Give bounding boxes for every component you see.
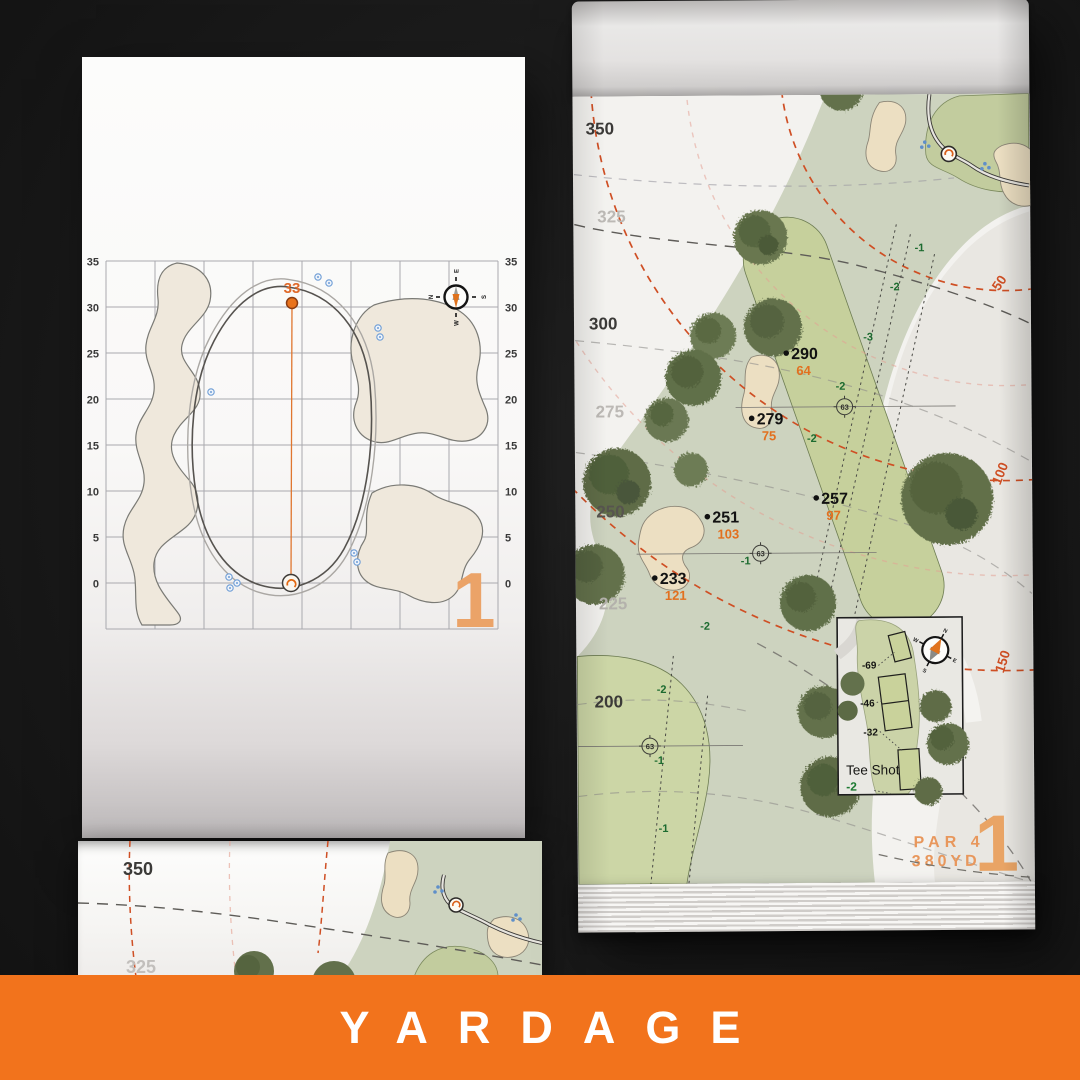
- tee-yardage-label: -32: [863, 727, 878, 738]
- tee-shot-title: Tee Shot: [846, 762, 900, 777]
- hole-number: 1: [452, 556, 495, 644]
- elevation-label: -3: [863, 332, 873, 344]
- axis-tick-label: 25: [87, 349, 99, 361]
- hole-map-page: 63 63 63 350 325 300 275 250 225 200: [572, 0, 1035, 933]
- sprinkler-distance: 63: [840, 403, 848, 412]
- hole-map-svg: 63 63 63 350 325 300 275 250 225 200: [572, 93, 1034, 884]
- elevation-label: -2: [700, 621, 710, 633]
- point-distance: 233: [660, 571, 687, 588]
- hole-number: 1: [974, 799, 1019, 885]
- axis-tick-label: 5: [93, 533, 99, 545]
- axis-tick-label: 35: [87, 257, 99, 269]
- tee-yardage-label: -46: [860, 699, 875, 710]
- scale-label: 250: [596, 502, 625, 521]
- compass-e: E: [455, 269, 461, 273]
- scale-label: 300: [589, 314, 618, 333]
- scale-label: 325: [126, 957, 156, 977]
- compass-n: N: [429, 295, 435, 299]
- elevation-label: -2: [657, 684, 667, 696]
- axis-ticks-right: 35 30 25 20 15 10 5 0: [505, 257, 517, 591]
- hole-map: 63 63 63 350 325 300 275 250 225 200: [572, 93, 1034, 884]
- axis-tick-label: 35: [505, 257, 517, 269]
- flipped-page-back: [572, 0, 1030, 97]
- green-depth-measure: 33: [283, 280, 301, 592]
- bunker: [123, 263, 488, 625]
- point-to-front: 75: [762, 428, 777, 443]
- next-page-preview: 350 325: [78, 841, 542, 977]
- compass-w: W: [455, 320, 461, 326]
- green-outline: [188, 279, 376, 596]
- elevation-label: -1: [654, 755, 664, 767]
- point-to-front: 103: [717, 526, 739, 541]
- axis-tick-label: 0: [93, 579, 99, 591]
- tee-yardage-label: -69: [862, 660, 877, 671]
- axis-ticks-left: 35 30 25 20 15 10 5 0: [87, 257, 99, 591]
- axis-tick-label: 30: [87, 303, 99, 315]
- axis-tick-label: 20: [87, 395, 99, 407]
- scale-label: 350: [586, 119, 615, 138]
- point-to-front: 64: [796, 363, 811, 378]
- yardage-book-mockup: { "banner": { "label": "YARDAGE" }, "lef…: [0, 0, 1080, 1080]
- point-distance: 279: [757, 411, 784, 428]
- point-distance: 257: [821, 491, 848, 508]
- pin-marker: [941, 146, 956, 161]
- axis-tick-label: 10: [505, 487, 517, 499]
- back-point-marker: [287, 298, 298, 309]
- tree: [645, 398, 689, 442]
- scale-label: 275: [596, 402, 625, 421]
- yardage-banner: YARDAGE: [0, 975, 1080, 1080]
- point-distance: 251: [712, 509, 739, 526]
- axis-tick-label: 20: [505, 395, 517, 407]
- green-detail-page: 33 35 30 25 20 15 10 5 0 35 30 25 20 15 …: [82, 57, 525, 838]
- sprinkler-distance: 63: [756, 549, 764, 558]
- axis-tick-label: 30: [505, 303, 517, 315]
- sprinkler-head-icon: [208, 274, 383, 591]
- compass-s: S: [482, 295, 488, 299]
- scale-label: 325: [597, 207, 626, 226]
- tree: [780, 575, 836, 631]
- point-to-front: 97: [826, 508, 841, 523]
- point-to-front: 121: [665, 588, 687, 603]
- elevation-label: -2: [890, 281, 900, 293]
- banner-label: YARDAGE: [310, 1002, 771, 1054]
- axis-tick-label: 5: [505, 533, 511, 545]
- elevation-label: -1: [659, 823, 669, 835]
- elevation-label: -1: [915, 242, 925, 254]
- tree: [733, 210, 787, 264]
- page-stack-edges: [578, 881, 1035, 932]
- point-distance: 290: [791, 346, 818, 363]
- distance-arc: [129, 841, 328, 977]
- pin-marker: [449, 898, 463, 912]
- tree: [234, 951, 356, 977]
- scale-label: 200: [595, 692, 624, 711]
- axis-tick-label: 10: [87, 487, 99, 499]
- green-grid-map: 33 35 30 25 20 15 10 5 0 35 30 25 20 15 …: [82, 253, 522, 645]
- axis-tick-label: 25: [505, 349, 517, 361]
- tree: [665, 350, 721, 406]
- sprinkler-distance: 63: [646, 742, 654, 751]
- front-of-green-marker: [283, 575, 300, 592]
- axis-tick-label: 0: [505, 579, 511, 591]
- tree: [674, 453, 708, 487]
- scale-label: 225: [599, 594, 628, 613]
- tree: [901, 453, 994, 546]
- next-page-map: 350 325: [78, 841, 542, 977]
- elevation-label: -2: [807, 433, 817, 445]
- tee-shot-elevation: -2: [846, 780, 857, 794]
- elevation-label: -2: [836, 381, 846, 393]
- axis-tick-label: 15: [87, 441, 99, 453]
- elevation-label: -1: [741, 555, 751, 567]
- front-distance-label: 33: [284, 280, 301, 297]
- axis-tick-label: 15: [505, 441, 517, 453]
- scale-label: 350: [123, 859, 153, 879]
